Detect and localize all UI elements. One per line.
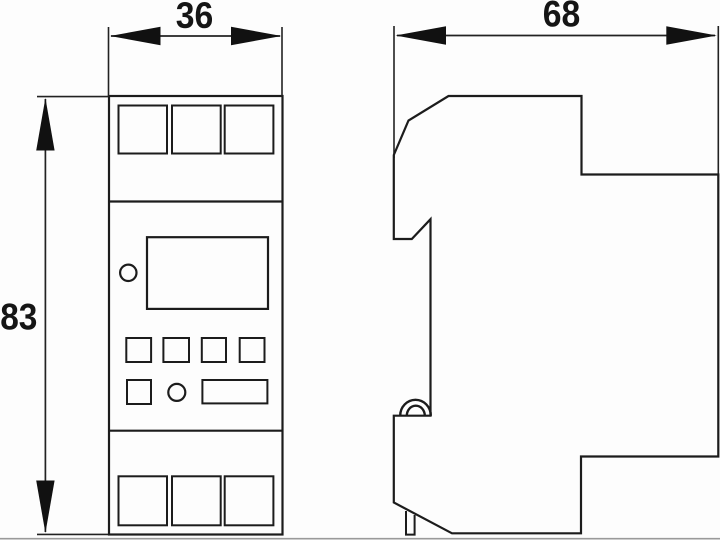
svg-text:36: 36 [176, 0, 214, 36]
svg-text:68: 68 [543, 0, 581, 35]
svg-text:83: 83 [0, 297, 37, 338]
